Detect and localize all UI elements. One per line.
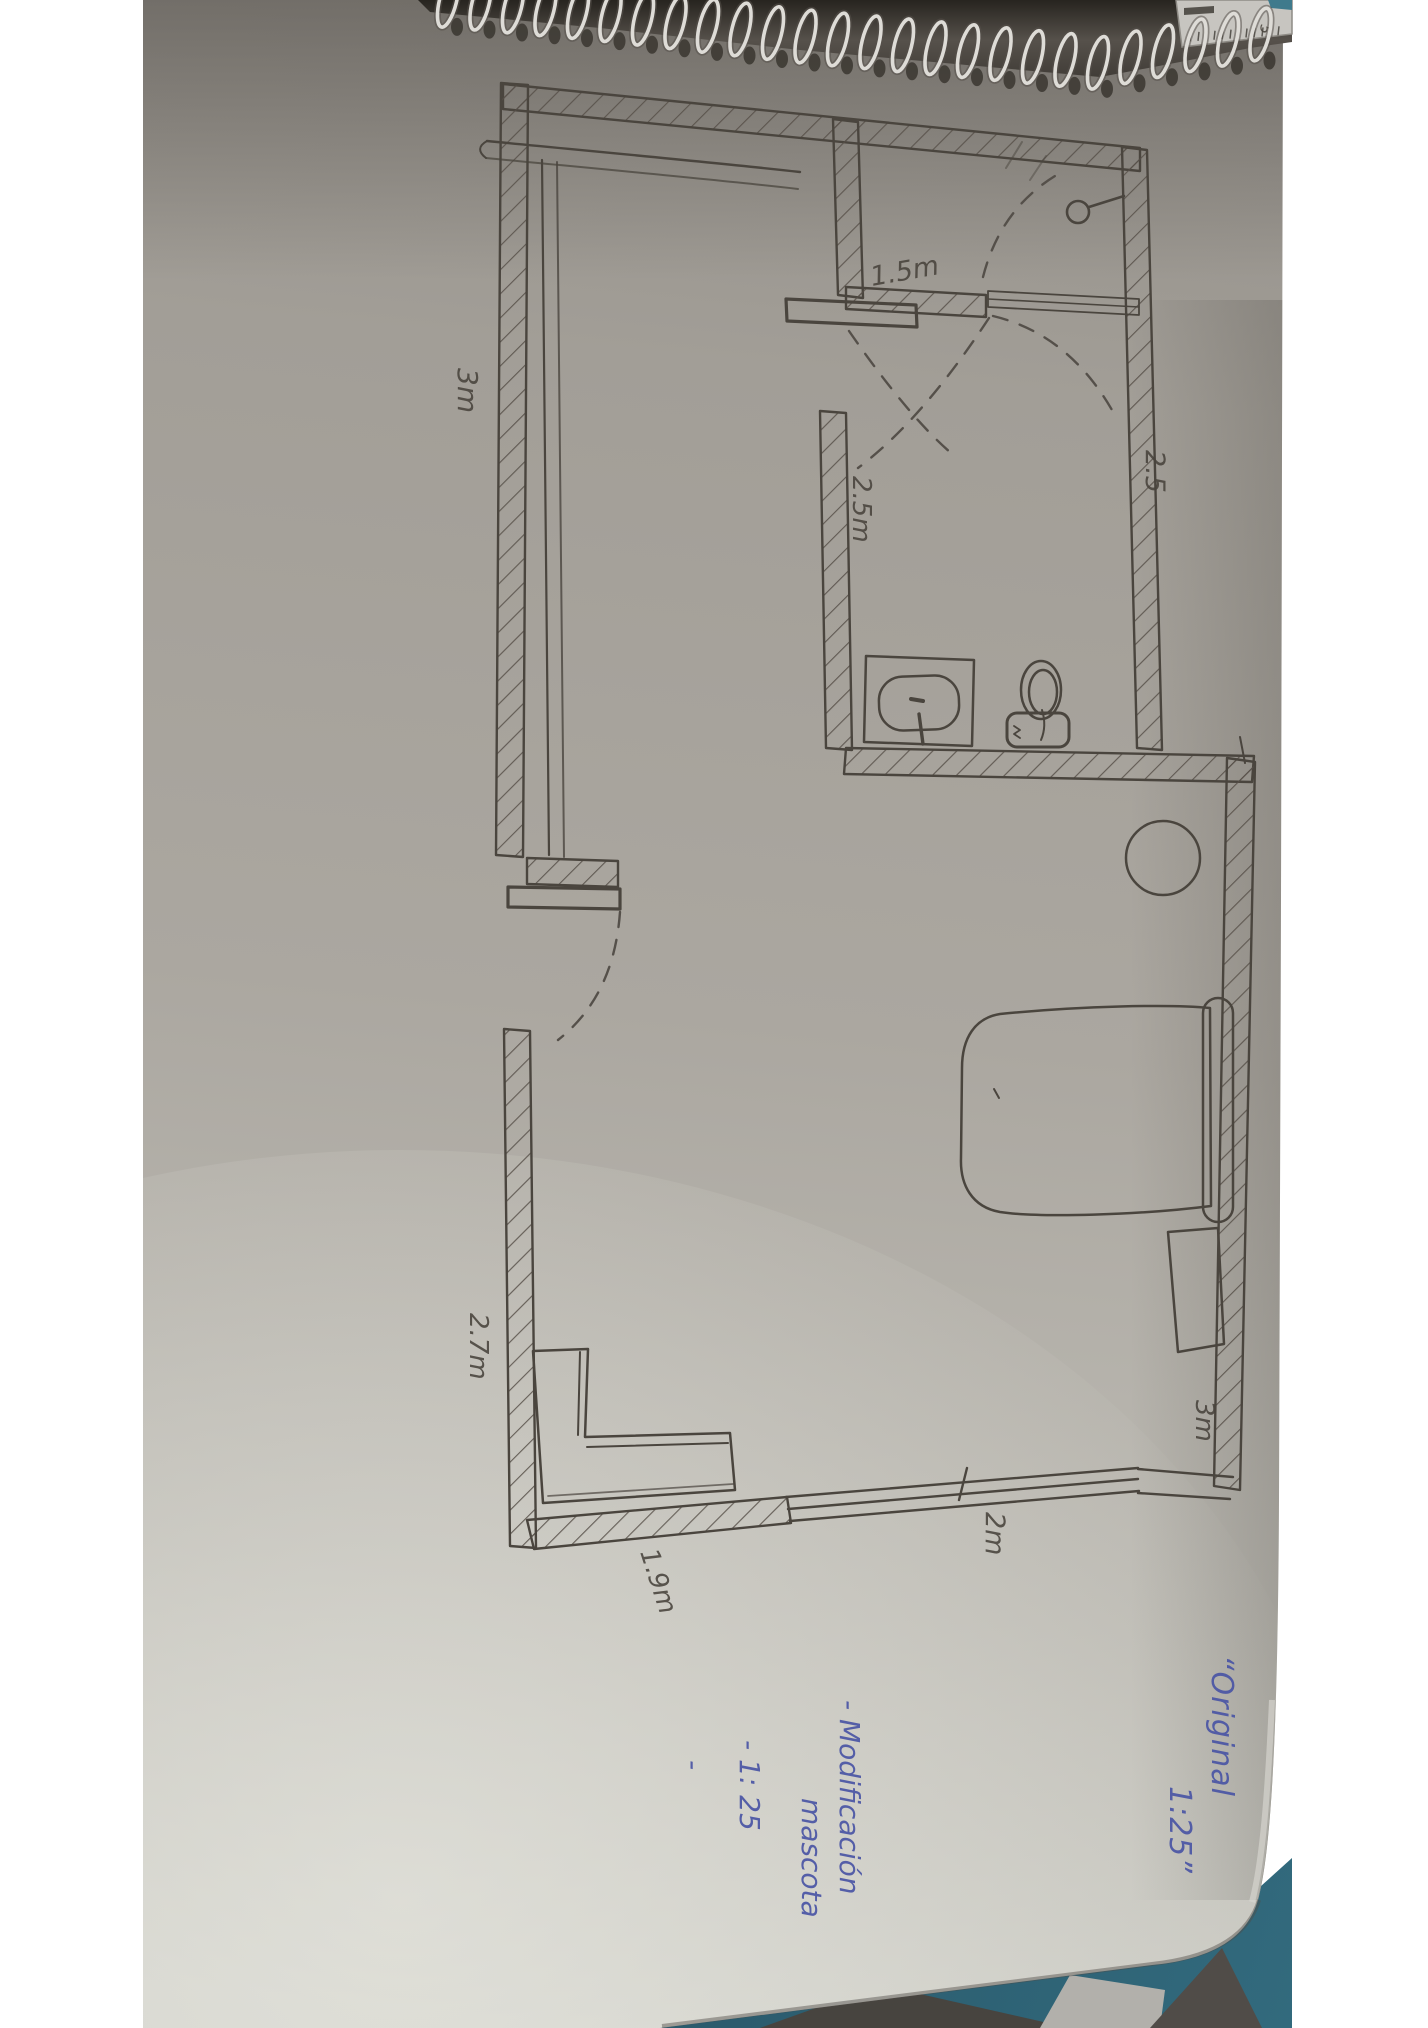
label-lower-left-wall: 2.7m	[463, 1313, 493, 1380]
note-scale: - 1: 25	[733, 1740, 766, 1831]
note-original-line1: “Original	[1204, 1655, 1239, 1797]
label-bath-left-wall: 2.5m	[846, 476, 876, 543]
screenshot-canvas: 5	[0, 0, 1428, 2028]
note-original-line2: 1:25”	[1162, 1786, 1197, 1874]
ruler-tick	[1198, 32, 1199, 41]
wall-bath-left-lower	[820, 411, 852, 750]
ruler-tick	[1214, 31, 1215, 40]
label-hall-left-wall: 3m	[451, 368, 484, 413]
label-window: 2m	[979, 1512, 1010, 1555]
note-modification-line1: - Modificación	[833, 1700, 866, 1895]
ruler-tick	[1246, 29, 1247, 38]
note-modification-line2: mascota	[795, 1798, 828, 1918]
sink-faucet	[911, 699, 923, 701]
note-stray-dash: -	[677, 1760, 710, 1770]
label-bath-right-wall: 2.5	[1139, 450, 1170, 493]
notebook-photo: 5	[0, 0, 1428, 2028]
ruler-tick	[1278, 26, 1279, 35]
wall-bath-left-upper	[833, 119, 863, 298]
ruler-tick	[1230, 30, 1231, 39]
wall-left-upper	[496, 83, 528, 857]
wall-left-lower	[504, 1029, 536, 1548]
wall-entry-stub	[527, 858, 618, 887]
label-main-right-wall: 3m	[1189, 1400, 1219, 1442]
